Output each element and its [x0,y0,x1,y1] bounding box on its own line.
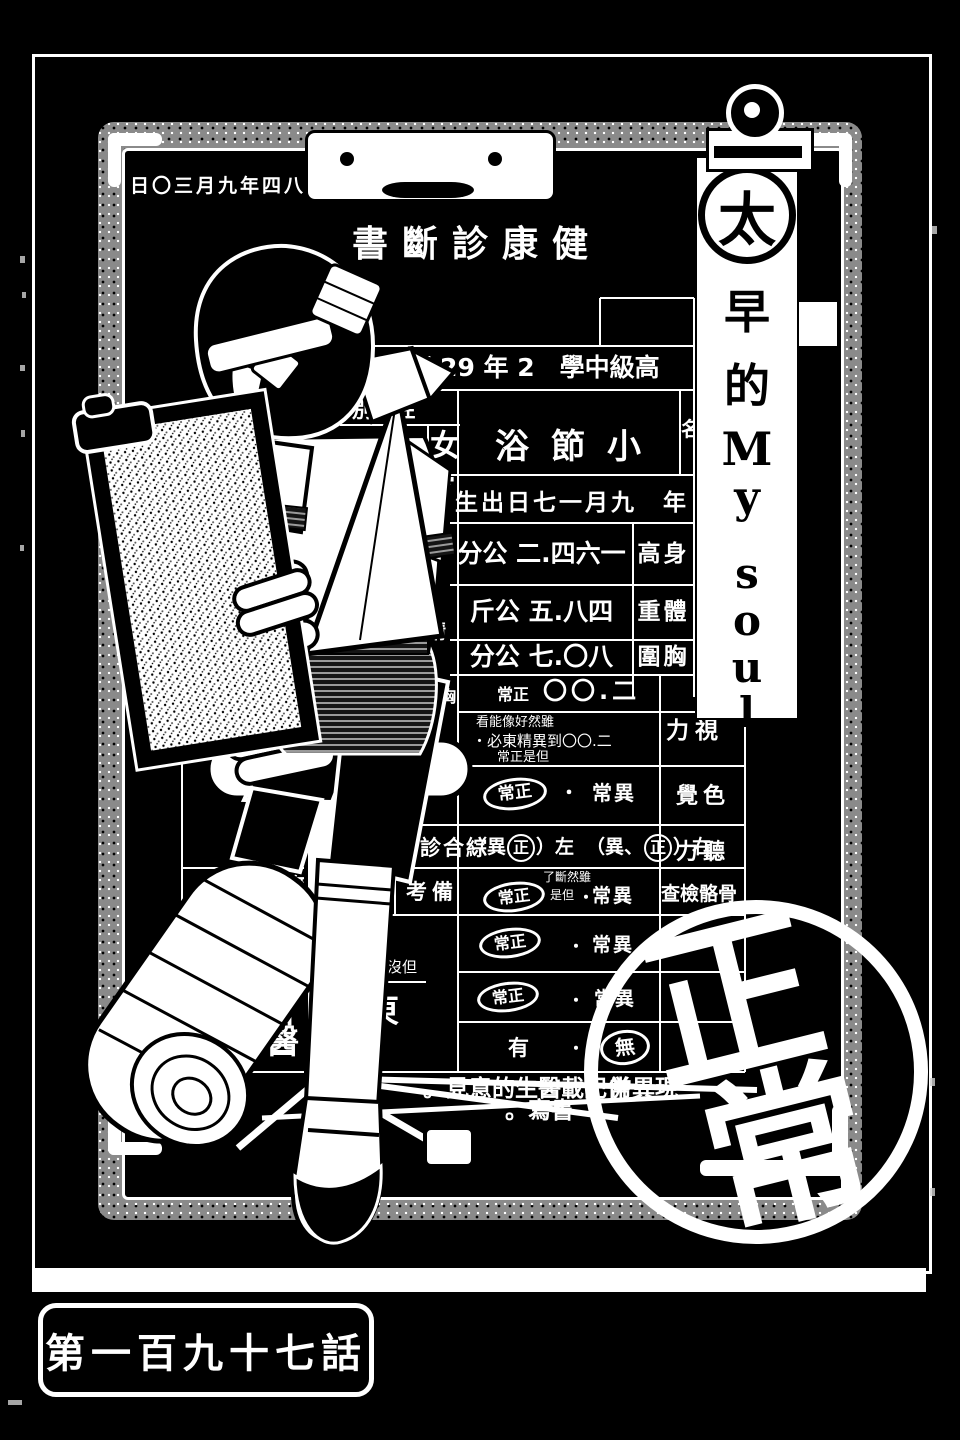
row9-separator: ・ [568,992,584,1010]
bone-label: 查檢骼骨 [661,884,737,906]
manga-page: 第一百九十七話 日〇三月九年四八和昭 書斷診康健 班 29 年 2 學中級高 別… [0,0,960,1440]
hearing-seg: （異、 [586,837,643,859]
hearing-seg: （異 [468,837,506,859]
circled-character-glyph: 太 [718,173,776,257]
left-normal-1-circled: 常正 [208,610,275,649]
hearing-label: 力聽 [676,840,730,865]
binder-clip-stripe [714,146,802,158]
left-partial-header: 心中佳 [248,378,338,408]
height-label: 高身 [633,523,694,585]
row8-normal-circled: 常正 [477,924,542,962]
vision-note-2: ・必東精異到〇〇.二 [472,733,612,750]
row10-yes: 有 [508,1036,529,1060]
left-none-value: 無 [290,874,310,897]
circled-character: 太 [698,166,796,264]
birth-date-row: 生出日七一月九 年 [455,490,689,516]
name-value: 浴節小 [495,428,663,467]
hearing-circled-normal: 正 [644,834,672,862]
color-label: 覺色 [676,784,730,809]
chest-value: 分公 七.〇八 [450,640,633,675]
bone-abnormal: 常異 [592,886,634,908]
vision-value: 〇〇.二 [543,678,640,706]
hospital-line2: 院醫 [230,1023,302,1061]
bone-note-1: 了斷然雖 [543,871,591,885]
banner-char: u [732,643,763,692]
left-dot-1: ・ [300,626,316,644]
footnote-line2: 。寫書 [505,1098,574,1124]
row9-abnormal: 常異 [594,989,636,1011]
color-abnormal: 常異 [592,782,636,805]
left-normal-2-circled: 常正 [191,696,258,735]
clip-hole [340,152,354,166]
color-normal-circled: 常正 [481,774,548,813]
clip-notch [382,182,474,198]
school-grade-class: 班 29 年 2 學中級高 [372,346,694,390]
hearing-value: （異正）左（異、正）右 [468,834,711,862]
banner-char: 早 [724,276,770,342]
weight-value: 斤公 五.八四 [450,585,633,640]
banner-char: s [735,549,759,598]
vision-note-3: 常正是但 [497,751,549,766]
color-separator: ・ [560,784,578,805]
row10-separator: ・ [568,1040,584,1058]
chest-xray-label: 胸部X光檢查 [434,688,458,709]
chest-label: 圍胸 [633,640,694,675]
vision-normal: 常正 [497,686,529,704]
remarks-label: 考備 [406,880,458,904]
row10-none-circled: 無 [598,1027,652,1068]
left-normal-3-circled: 常正 [284,826,349,864]
mental-label: 神精 [404,620,448,643]
footnote-line1b: 、常異現 [586,1076,678,1102]
reference-mark: ※ [432,468,455,496]
hand-note: 有沒但 [372,959,417,976]
sex-header: 別 性 [352,398,422,423]
clip-hole [488,152,502,166]
hand-note-fragment: 、處 [280,951,308,967]
hospital-line1-right: 東 [366,992,399,1030]
height-value: 分公 二.四六一 [450,523,633,585]
binder-clip-ring-center [744,102,760,118]
vision-label: 力視 [666,718,724,744]
banner-char: y [734,472,760,523]
bone-normal-circled: 常正 [481,878,546,916]
banner-char: o [733,596,761,645]
form-title: 書斷診康健 [352,224,602,265]
row8-abnormal: 常異 [592,935,634,957]
banner-char: l [739,688,755,737]
hearing-circled-normal: 正 [507,834,535,862]
hand-note-underline [370,981,426,983]
row9-normal-circled: 常正 [475,978,540,1016]
vision-note-1: 看能像好然雖 [476,716,554,731]
row8-separator: ・ [568,938,584,956]
banner-char: M [722,422,773,476]
weight-label: 重體 [633,585,694,640]
hearing-seg: ）左 [536,837,574,859]
banner-char: 的 [724,350,770,416]
sex-value: 女 [430,430,460,465]
bone-note-2: 是但 [550,889,574,903]
left-dot-2: ・ [266,728,282,746]
chapter-title-banner: 太 早 的 M y s o u l [695,156,799,720]
